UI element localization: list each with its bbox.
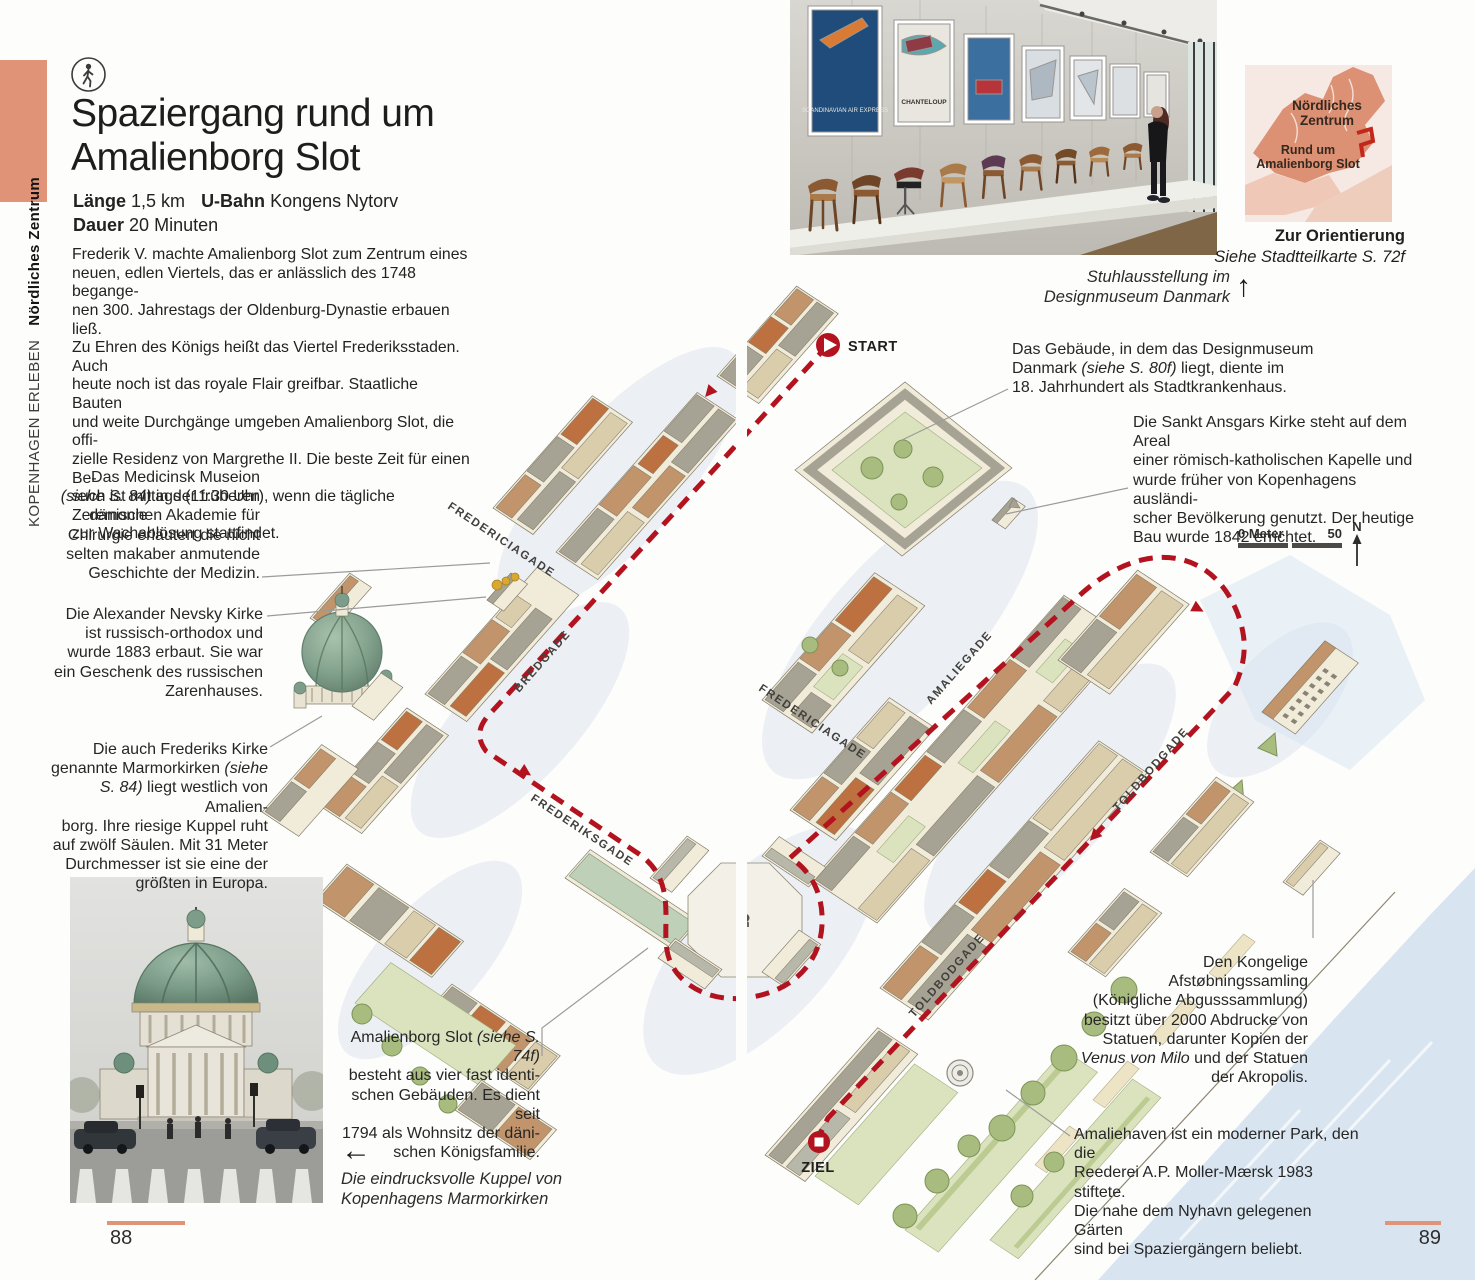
annotation-text: Amalienborg Slot <box>351 1029 477 1046</box>
annotation-designmuseum: Das Gebäude, in dem das Designmuseum Dan… <box>1012 340 1317 398</box>
scale-fifty-label: 50 <box>1328 526 1342 541</box>
annotation-afstoebningssamling: Den Kongelige Afstøbningssamling (Königl… <box>1080 953 1308 1087</box>
marmorkirken-photo <box>70 877 323 1203</box>
walking-person-icon <box>70 56 107 93</box>
annotation-amaliehaven: Amaliehaven ist ein moderner Park, den d… <box>1074 1125 1359 1259</box>
annotation-text: Das Medicinsk Museion <box>91 469 260 486</box>
museum-photo-caption: Stuhlausstellung im Designmuseum Danmark <box>930 268 1230 308</box>
sidebar-chapter: Nördliches Zentrum <box>26 177 43 326</box>
poster-text-chanteloup: CHANTELOUP <box>901 99 947 106</box>
marmorkirken-map <box>294 573 403 720</box>
annotation-marmorkirken: Die auch Frederiks Kirke genannte Marmor… <box>40 740 268 894</box>
up-arrow-icon: ↑ <box>1236 272 1251 302</box>
page-reference: (siehe S. 74f) <box>477 1029 540 1065</box>
annotation-text: Die Alexander Nevsky Kirke ist russisch-… <box>54 606 263 700</box>
page-reference: (siehe S. 80f) <box>1081 360 1176 377</box>
orientation-subtitle: Siehe Stadtteilkarte S. 72f <box>1160 248 1405 267</box>
duration-value: 20 Minuten <box>129 215 218 235</box>
page-number-rule-right <box>1385 1221 1441 1225</box>
annotation-text: und der Statuen der Akropolis. <box>1190 1050 1308 1086</box>
church-photo-caption: Die eindrucksvolle Kuppel von Kopenhagen… <box>341 1170 571 1210</box>
designmuseum-photo: SCANDINAVIAN AIR EXPRESS CHANTELOUP <box>790 0 1217 255</box>
orientation-title: Zur Orientierung <box>1200 227 1405 246</box>
page-number-right: 89 <box>1413 1227 1441 1250</box>
north-label: N <box>1352 519 1361 534</box>
annotation-text: liegt westlich von Amalien- borg. Ihre r… <box>53 779 268 892</box>
annotation-nevsky-kirke: Die Alexander Nevsky Kirke ist russisch-… <box>50 605 263 701</box>
ziel-label: ZIEL <box>801 1160 834 1176</box>
duration-label: Dauer <box>73 215 124 235</box>
ubahn-value: Kongens Nytorv <box>270 191 398 211</box>
north-compass: N <box>1346 518 1370 570</box>
annotation-medicinsk-museion: Das Medicinsk Museion (siehe S. 84) in d… <box>50 468 260 583</box>
page-gutter <box>736 262 747 1248</box>
start-marker: START <box>816 333 898 357</box>
scale-zero-label: 0 Meter <box>1238 526 1284 541</box>
scale-bar: 0 Meter50 <box>1238 526 1342 548</box>
annotation-text: Amaliehaven ist ein moderner Park, den d… <box>1074 1126 1359 1258</box>
length-value: 1,5 km <box>131 191 185 211</box>
minimap-route-label: Rund um Amalienborg Slot <box>1233 143 1383 172</box>
poster-text-sas: SCANDINAVIAN AIR EXPRESS <box>802 108 888 114</box>
page-reference: (siehe S. 84) <box>61 488 152 505</box>
sidebar-series: KOPENHAGEN ERLEBEN <box>26 340 43 527</box>
fountain <box>947 1060 973 1086</box>
start-label: START <box>848 339 898 355</box>
sidebar-vertical-label: KOPENHAGEN ERLEBENNördliches Zentrum <box>26 177 43 527</box>
page-number-rule-left <box>107 1221 185 1225</box>
annotation-text: Den Kongelige Afstøbningssamling (Königl… <box>1084 954 1308 1048</box>
street-label-frederiksgade: FREDERIKSGADE <box>528 792 635 869</box>
artwork-name: Venus von Milo <box>1081 1050 1190 1067</box>
page-number-left: 88 <box>110 1227 132 1250</box>
annotation-text: besteht aus vier fast identi- schen Gebä… <box>342 1067 540 1161</box>
guidebook-spread: FREDERICIAGADE FREDERICIAGADE BREDGADE F… <box>0 0 1475 1280</box>
left-arrow-icon: ← <box>341 1136 371 1166</box>
page-title: Spaziergang rund um Amalienborg Slot <box>71 92 434 179</box>
minimap-region-label: Nördliches Zentrum <box>1252 98 1402 128</box>
tour-meta: Länge 1,5 kmU-Bahn Kongens Nytorv Dauer … <box>73 189 398 237</box>
ubahn-label: U-Bahn <box>201 191 265 211</box>
length-label: Länge <box>73 191 126 211</box>
